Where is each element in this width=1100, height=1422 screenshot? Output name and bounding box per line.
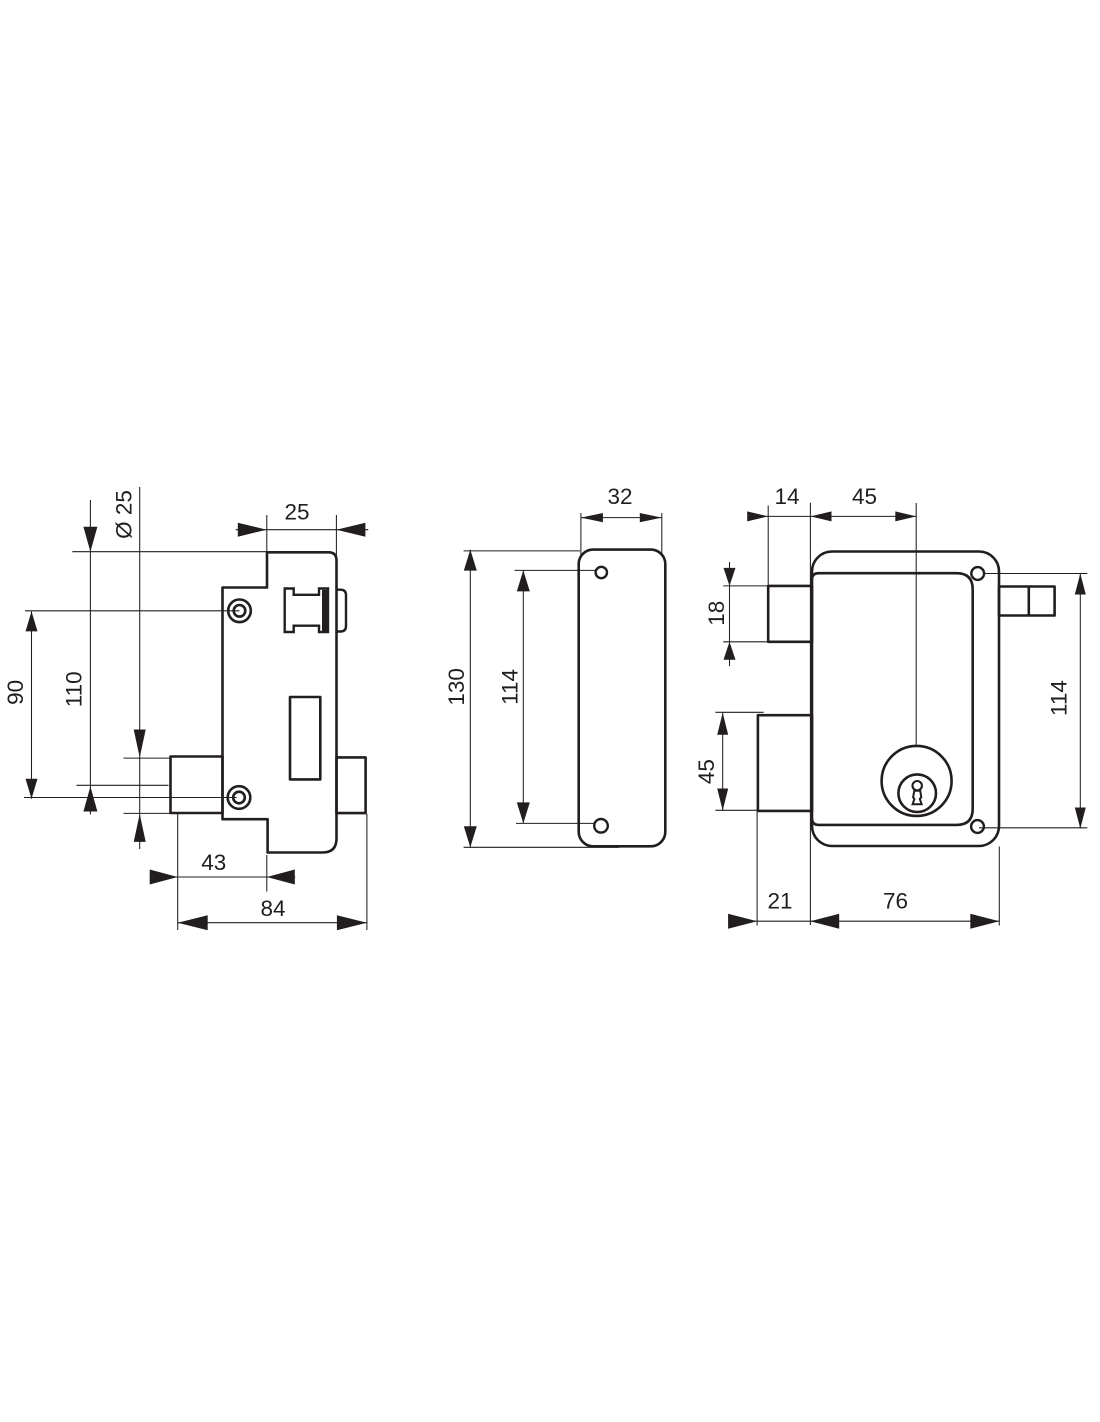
svg-text:45: 45 <box>852 484 877 509</box>
svg-text:25: 25 <box>284 500 309 525</box>
svg-text:114: 114 <box>1047 680 1072 716</box>
svg-text:90: 90 <box>3 680 28 705</box>
svg-text:43: 43 <box>201 850 226 875</box>
svg-text:21: 21 <box>767 889 792 914</box>
svg-text:114: 114 <box>498 669 523 705</box>
svg-text:110: 110 <box>62 671 87 707</box>
svg-text:76: 76 <box>883 889 908 914</box>
svg-text:14: 14 <box>774 484 799 509</box>
svg-text:32: 32 <box>607 484 632 509</box>
svg-text:84: 84 <box>260 896 285 921</box>
svg-text:Ø 25: Ø 25 <box>112 490 137 539</box>
svg-text:130: 130 <box>444 668 469 706</box>
svg-text:45: 45 <box>694 759 719 784</box>
svg-text:18: 18 <box>704 601 729 626</box>
